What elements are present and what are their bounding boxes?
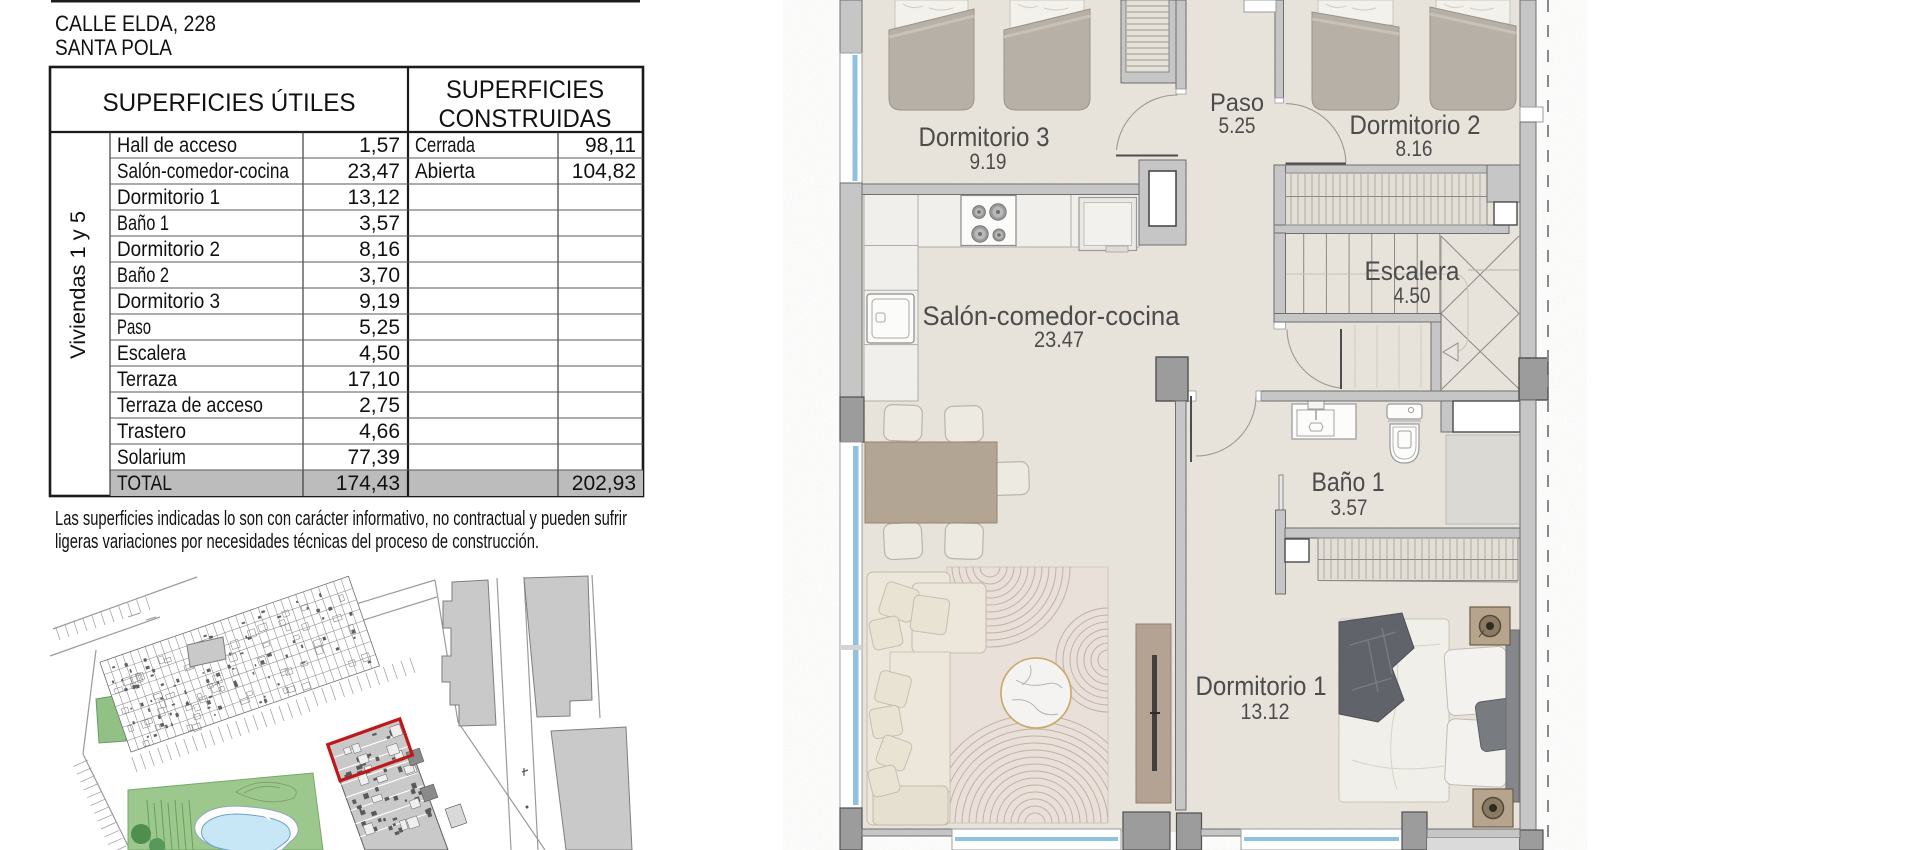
svg-text:104,82: 104,82	[572, 160, 636, 183]
svg-text:5,25: 5,25	[359, 316, 400, 339]
svg-text:Viviendas 1 y 5: Viviendas 1 y 5	[67, 211, 90, 359]
svg-text:Trastero: Trastero	[117, 420, 186, 443]
svg-text:Abierta: Abierta	[415, 160, 475, 183]
svg-text:174,43: 174,43	[336, 472, 400, 495]
svg-text:Cerrada: Cerrada	[415, 134, 475, 157]
svg-text:CALLE ELDA, 228: CALLE ELDA, 228	[55, 11, 216, 36]
svg-text:9.19: 9.19	[970, 149, 1007, 174]
svg-text:13.12: 13.12	[1241, 699, 1290, 724]
svg-text:Terraza de acceso: Terraza de acceso	[117, 394, 263, 417]
svg-text:Baño 1: Baño 1	[1312, 467, 1385, 497]
svg-text:4,50: 4,50	[359, 342, 400, 365]
svg-text:202,93: 202,93	[572, 472, 636, 495]
svg-text:2,75: 2,75	[359, 394, 400, 417]
svg-text:13,12: 13,12	[347, 186, 400, 209]
svg-text:23.47: 23.47	[1034, 327, 1084, 352]
svg-text:Escalera: Escalera	[117, 342, 186, 365]
svg-text:77,39: 77,39	[347, 446, 400, 469]
svg-text:5.25: 5.25	[1219, 113, 1256, 138]
svg-text:Dormitorio 1: Dormitorio 1	[1196, 671, 1327, 701]
svg-text:TOTAL: TOTAL	[117, 472, 172, 495]
svg-text:4,66: 4,66	[359, 420, 400, 443]
svg-text:3,70: 3,70	[359, 264, 400, 287]
svg-text:Solarium: Solarium	[117, 446, 186, 469]
svg-text:8,16: 8,16	[359, 238, 400, 261]
svg-text:4.50: 4.50	[1394, 283, 1431, 308]
svg-text:8.16: 8.16	[1396, 136, 1433, 161]
svg-text:CONSTRUIDAS: CONSTRUIDAS	[439, 105, 612, 133]
svg-text:ligeras variaciones por necesi: ligeras variaciones por necesidades técn…	[55, 531, 539, 553]
svg-text:Las superficies indicadas lo s: Las superficies indicadas lo son con car…	[55, 508, 627, 530]
svg-text:Terraza: Terraza	[117, 368, 177, 391]
svg-text:SANTA POLA: SANTA POLA	[55, 35, 172, 60]
svg-text:Escalera: Escalera	[1365, 256, 1461, 286]
svg-text:3,57: 3,57	[359, 212, 400, 235]
svg-text:98,11: 98,11	[585, 134, 636, 157]
svg-text:Hall de acceso: Hall de acceso	[117, 134, 237, 157]
svg-text:Dormitorio 3: Dormitorio 3	[919, 122, 1050, 152]
svg-text:9,19: 9,19	[359, 290, 400, 313]
svg-text:3.57: 3.57	[1331, 495, 1368, 520]
svg-text:Dormitorio 3: Dormitorio 3	[117, 290, 220, 313]
svg-text:SUPERFICIES ÚTILES: SUPERFICIES ÚTILES	[103, 88, 356, 117]
svg-text:Paso: Paso	[117, 316, 151, 339]
svg-text:1,57: 1,57	[359, 134, 400, 157]
svg-text:Salón-comedor-cocina: Salón-comedor-cocina	[117, 160, 289, 183]
svg-text:SUPERFICIES: SUPERFICIES	[446, 76, 604, 104]
svg-text:Baño 2: Baño 2	[117, 264, 169, 287]
svg-text:Dormitorio 2: Dormitorio 2	[117, 238, 220, 261]
svg-text:Baño 1: Baño 1	[117, 212, 169, 235]
svg-text:23,47: 23,47	[347, 160, 400, 183]
svg-text:Dormitorio 1: Dormitorio 1	[117, 186, 220, 209]
svg-text:17,10: 17,10	[347, 368, 400, 391]
